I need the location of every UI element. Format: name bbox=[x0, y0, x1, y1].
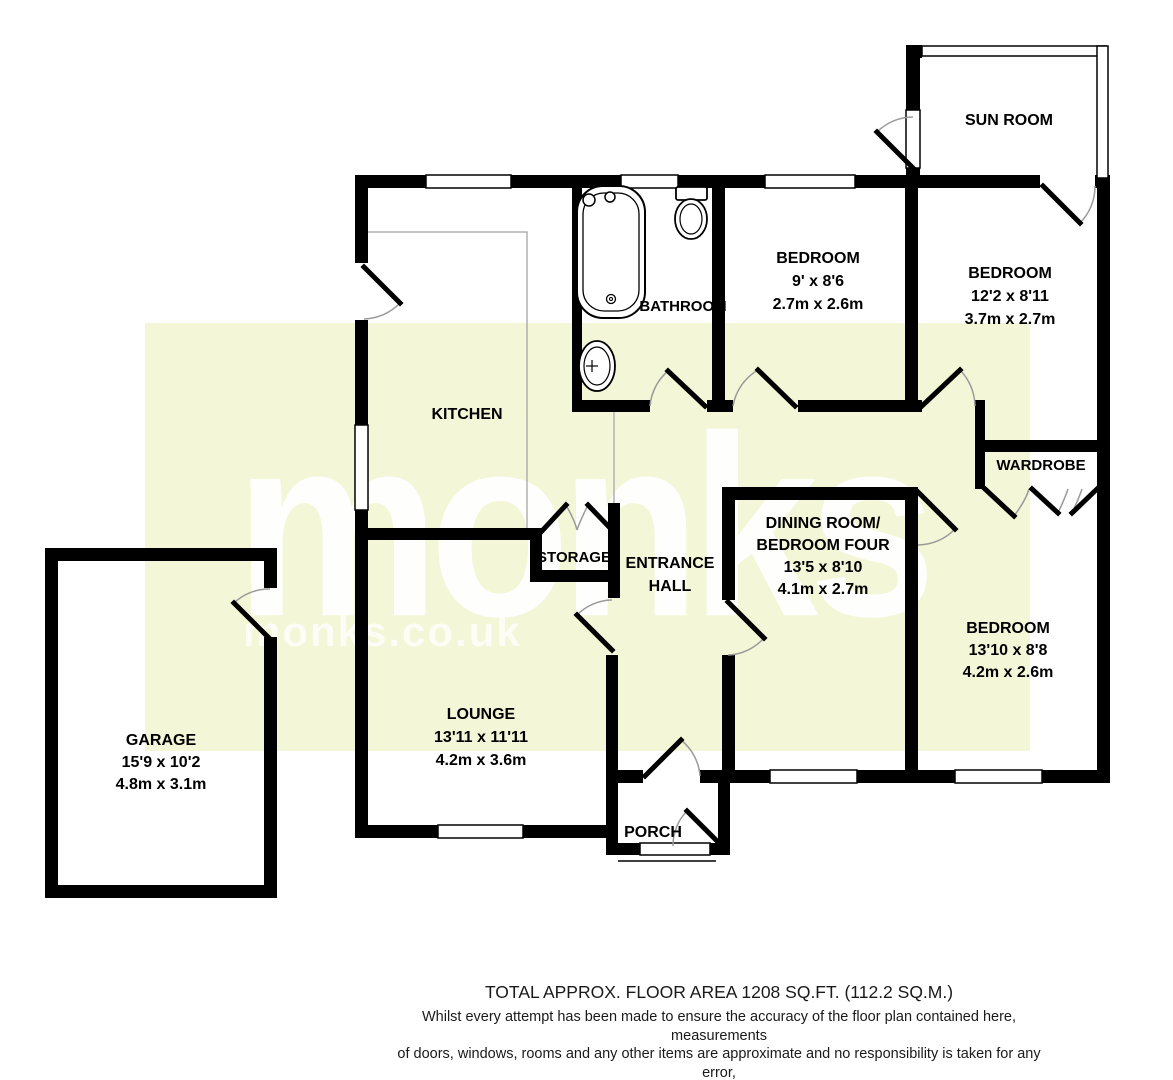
floorplan-drawing bbox=[0, 0, 1173, 1080]
total-floor-area: TOTAL APPROX. FLOOR AREA 1208 SQ.FT. (11… bbox=[389, 982, 1049, 1003]
footer-text-block: TOTAL APPROX. FLOOR AREA 1208 SQ.FT. (11… bbox=[389, 982, 1049, 1080]
room-label-dining-room: DINING ROOM/ BEDROOM FOUR 13'5 x 8'10 4.… bbox=[756, 513, 889, 601]
room-label-bedroom-two: BEDROOM 12'2 x 8'11 3.7m x 2.7m bbox=[965, 262, 1056, 331]
room-label-entrance-hall: ENTRANCE HALL bbox=[626, 552, 715, 598]
toilet-icon bbox=[675, 187, 707, 239]
room-label-kitchen: KITCHEN bbox=[431, 403, 502, 426]
room-label-sun-room: SUN ROOM bbox=[965, 109, 1053, 132]
room-label-storage: STORAGE bbox=[537, 547, 611, 569]
room-label-lounge: LOUNGE 13'11 x 11'11 4.2m x 3.6m bbox=[434, 703, 528, 772]
floor-plan-page: monks monks.co.uk bbox=[0, 0, 1173, 1080]
sink-icon bbox=[579, 341, 615, 391]
room-label-wardrobe: WARDROBE bbox=[996, 455, 1085, 477]
disclaimer-line: Whilst every attempt has been made to en… bbox=[389, 1008, 1049, 1045]
room-label-porch: PORCH bbox=[624, 821, 682, 844]
room-label-bedroom-one: BEDROOM 9' x 8'6 2.7m x 2.6m bbox=[773, 247, 864, 316]
disclaimer-line: of doors, windows, rooms and any other i… bbox=[389, 1045, 1049, 1080]
bathtub-icon bbox=[577, 186, 645, 318]
room-label-bathroom: BATHROOM bbox=[639, 296, 726, 318]
room-label-bedroom-three: BEDROOM 13'10 x 8'8 4.2m x 2.6m bbox=[963, 618, 1054, 684]
room-label-garage: GARAGE 15'9 x 10'2 4.8m x 3.1m bbox=[116, 730, 207, 796]
